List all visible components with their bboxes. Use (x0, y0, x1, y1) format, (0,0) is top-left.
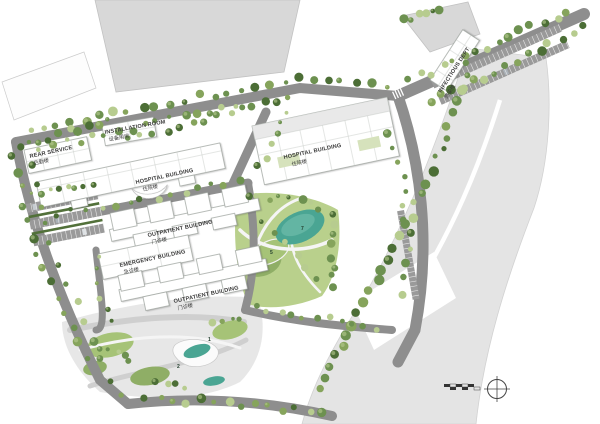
keynote-lawn: 5 (270, 250, 273, 256)
keynote-plaza-b: 1 (208, 337, 211, 343)
keynote-pond: 7 (301, 226, 304, 232)
keynote-plaza-a: 2 (177, 364, 180, 370)
offsite-building-block-top (95, 0, 300, 92)
site-plan-viewport: REAR SERVICE 后勤楼 INSTALLATION ROOM 设备用房 … (0, 0, 600, 424)
offsite-parcel-outline (2, 52, 96, 120)
entry-plaza (62, 297, 263, 398)
north-compass-icon (484, 376, 510, 402)
hospital-site-plan-drawing: REAR SERVICE 后勤楼 INSTALLATION ROOM 设备用房 … (0, 0, 600, 424)
building-hospital-right (252, 97, 399, 184)
